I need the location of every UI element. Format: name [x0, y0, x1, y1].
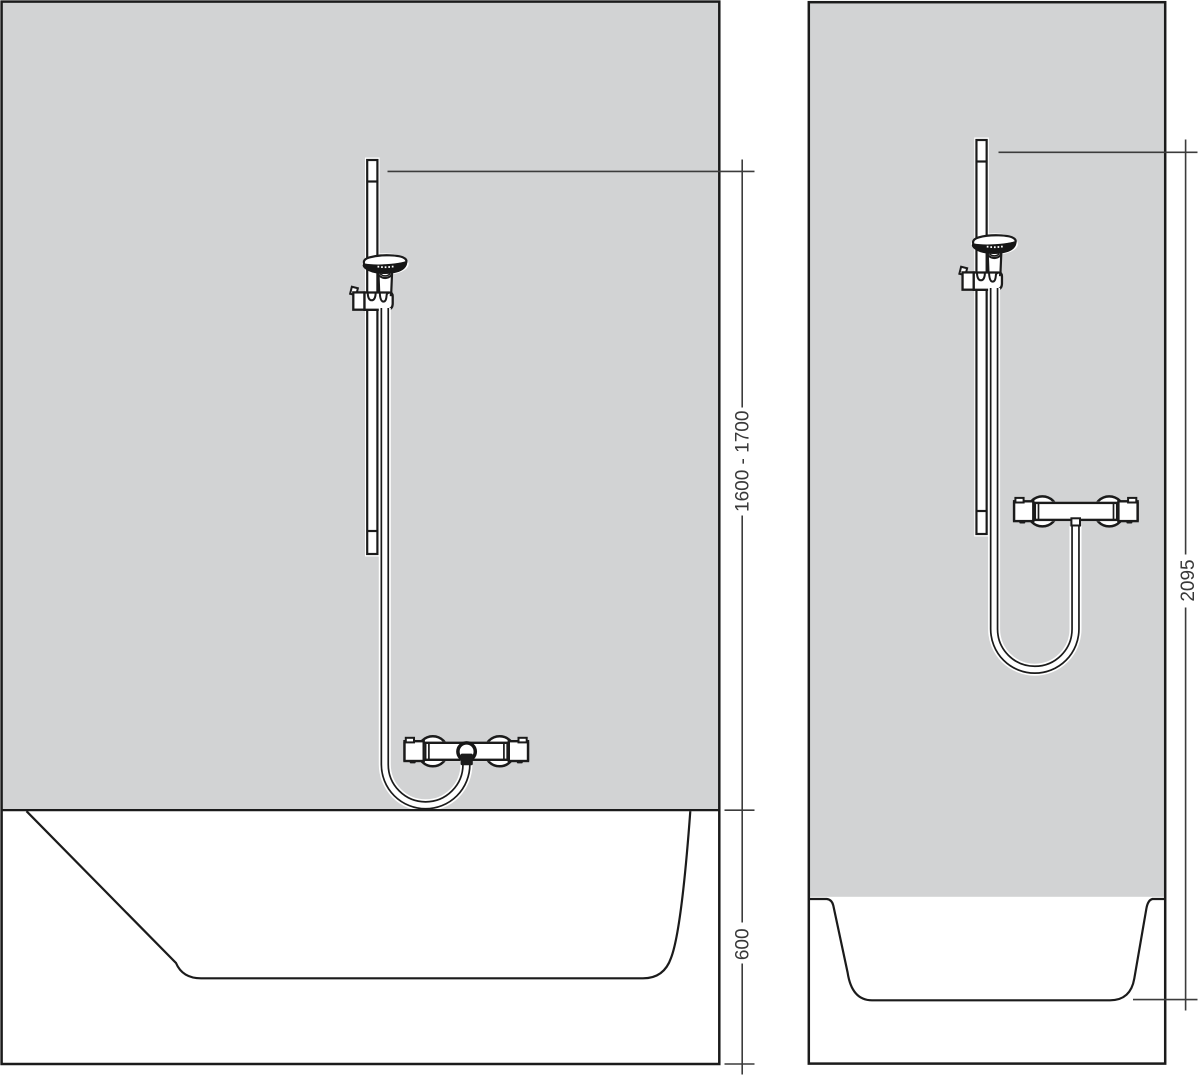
- svg-text:1600 - 1700: 1600 - 1700: [732, 411, 753, 512]
- svg-text:600: 600: [732, 928, 753, 960]
- svg-text:2095: 2095: [1178, 559, 1199, 601]
